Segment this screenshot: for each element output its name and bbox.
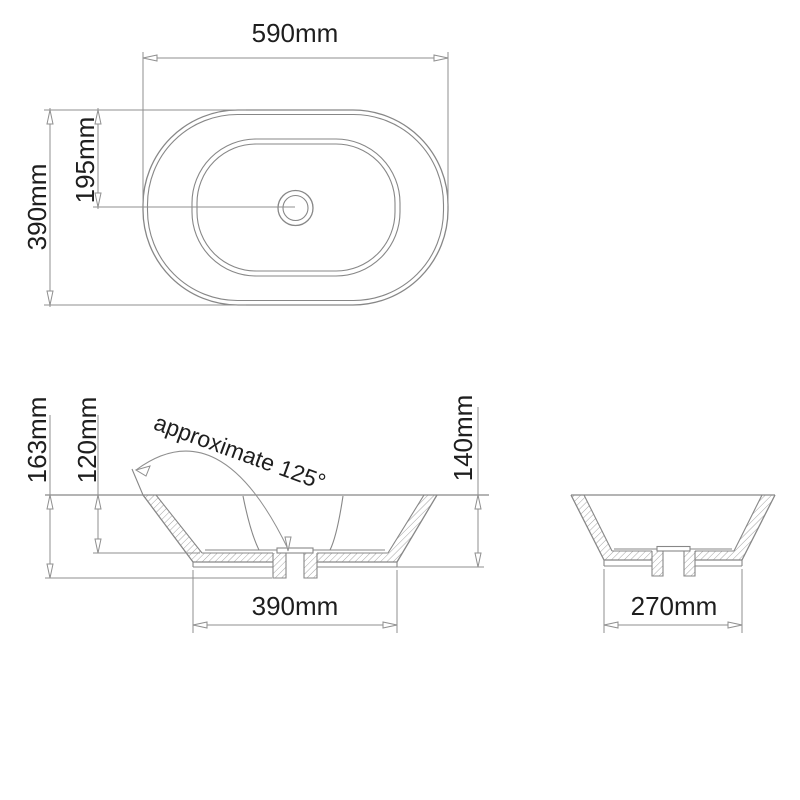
arrow-down (95, 539, 101, 553)
arrow-down (47, 564, 53, 578)
dim-label-side-base-width: 270mm (631, 591, 718, 621)
dim-label-front-base-width: 390mm (252, 591, 339, 621)
arrow-up (95, 495, 101, 509)
dimension-front-overall-height: 163mm (22, 397, 272, 578)
dimension-wall-angle: approximate 125° (136, 409, 329, 551)
dim-label-body-height: 140mm (448, 395, 478, 482)
side-section-view: 270mm (571, 495, 775, 633)
front-drain-recess (277, 548, 313, 553)
basin-technical-drawing: 590mm 390mm 195mm (0, 0, 800, 800)
top-view: 590mm 390mm 195mm (22, 18, 448, 307)
dim-label-bowl-depth: 120mm (72, 397, 102, 484)
arrow-angle-start (136, 466, 150, 476)
arrow-up (47, 495, 53, 509)
arrow-right (434, 55, 448, 61)
drain-waste-hole (278, 191, 313, 226)
front-inner-bowl-curve-left (243, 496, 259, 550)
side-drain-recess (657, 547, 690, 552)
front-section-view: 163mm 120mm 140mm 390mm (22, 395, 489, 633)
front-inner-bowl-curve-right (330, 496, 343, 550)
dim-label-top-width: 590mm (252, 18, 339, 48)
arrow-up (475, 495, 481, 509)
dimension-side-base-width: 270mm (604, 569, 742, 633)
dimension-top-center: 195mm (70, 108, 295, 209)
arrow-left (143, 55, 157, 61)
dim-label-top-length: 390mm (22, 164, 52, 251)
dim-label-top-center: 195mm (70, 117, 100, 204)
arrow-down (47, 291, 53, 305)
arrow-down (475, 553, 481, 567)
dimension-top-width: 590mm (143, 18, 448, 206)
arrow-right (728, 622, 742, 628)
arrow-right (383, 622, 397, 628)
arrow-up (47, 110, 53, 124)
dim-label-overall-height: 163mm (22, 397, 52, 484)
arrow-left (604, 622, 618, 628)
arrow-left (193, 622, 207, 628)
